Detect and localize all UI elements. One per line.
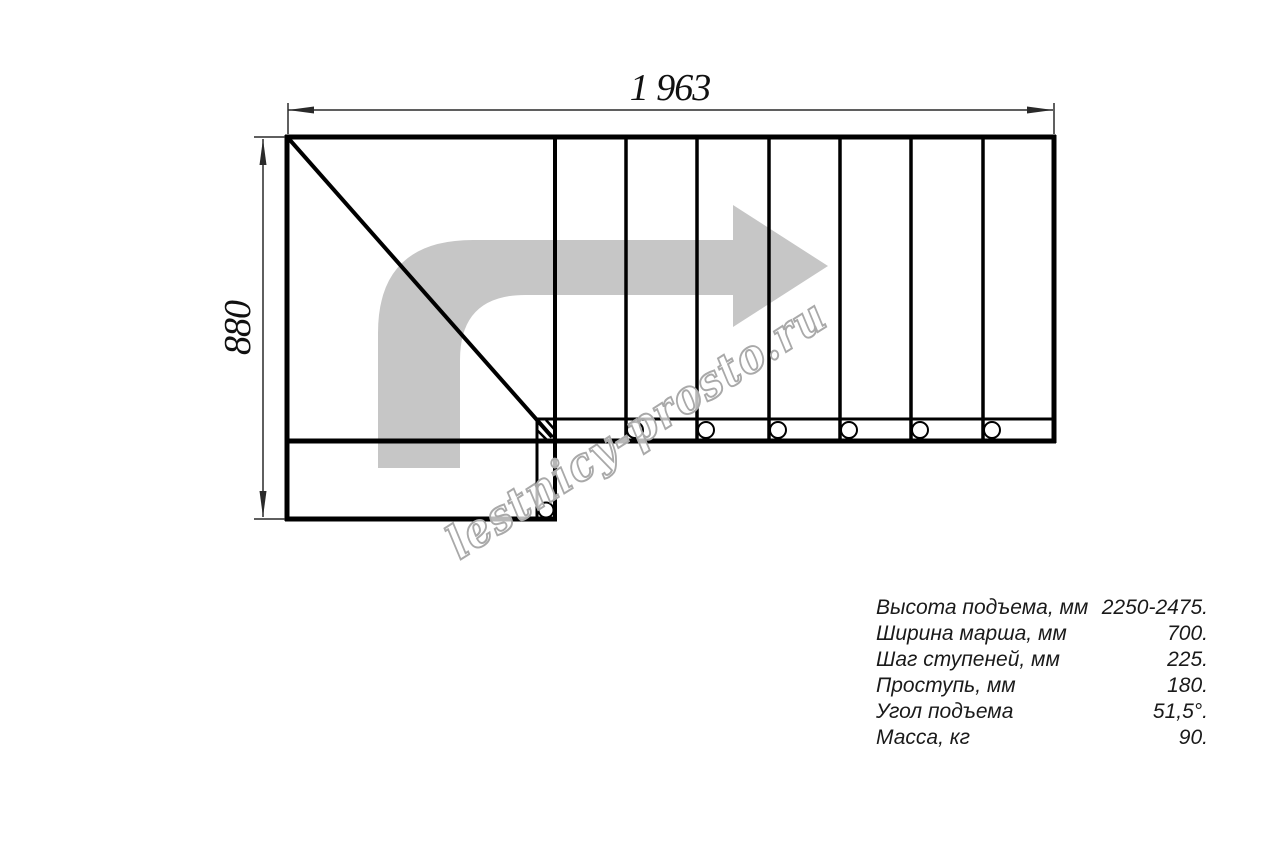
spec-row-climb-angle: Угол подъема 51,5°. xyxy=(876,699,1208,725)
spec-label: Угол подъема xyxy=(876,699,1153,725)
stair-plan-page: 1 963 880 lestnicy-prosto.ru Высота подъ… xyxy=(0,0,1280,853)
spec-value: 2250-2475. xyxy=(1102,595,1208,621)
baluster-circle xyxy=(698,422,714,438)
spec-label: Высота подъема, мм xyxy=(876,595,1102,621)
spec-row-flight-width: Ширина марша, мм 700. xyxy=(876,621,1208,647)
spec-value: 700. xyxy=(1167,621,1208,647)
spec-value: 180. xyxy=(1167,673,1208,699)
spec-label: Масса, кг xyxy=(876,725,1179,751)
spec-row-rise-height: Высота подъема, мм 2250-2475. xyxy=(876,595,1208,621)
baluster-circle xyxy=(984,422,1000,438)
spec-row-step-pitch: Шаг ступеней, мм 225. xyxy=(876,647,1208,673)
spec-value: 90. xyxy=(1179,725,1208,751)
left-dimension: 880 xyxy=(217,137,285,519)
spec-label: Шаг ступеней, мм xyxy=(876,647,1167,673)
spec-value: 51,5°. xyxy=(1153,699,1208,725)
dimension-arrowhead-bottom xyxy=(260,491,267,517)
baluster-circle xyxy=(770,422,786,438)
spec-row-mass: Масса, кг 90. xyxy=(876,725,1208,751)
spec-label: Проступь, мм xyxy=(876,673,1167,699)
dimension-arrowhead-top xyxy=(260,139,267,165)
baluster-circle xyxy=(912,422,928,438)
top-dimension-label: 1 963 xyxy=(630,67,711,109)
spec-label: Ширина марша, мм xyxy=(876,621,1167,647)
left-dimension-label: 880 xyxy=(217,300,259,355)
top-dimension: 1 963 xyxy=(288,67,1054,134)
spec-row-tread-depth: Проступь, мм 180. xyxy=(876,673,1208,699)
dimension-arrowhead-right xyxy=(1027,107,1053,114)
dimension-arrowhead-left xyxy=(288,107,314,114)
baluster-circle xyxy=(841,422,857,438)
newel-post-hatch xyxy=(537,420,555,441)
specs-table: Высота подъема, мм 2250-2475. Ширина мар… xyxy=(876,595,1208,751)
spec-value: 225. xyxy=(1167,647,1208,673)
